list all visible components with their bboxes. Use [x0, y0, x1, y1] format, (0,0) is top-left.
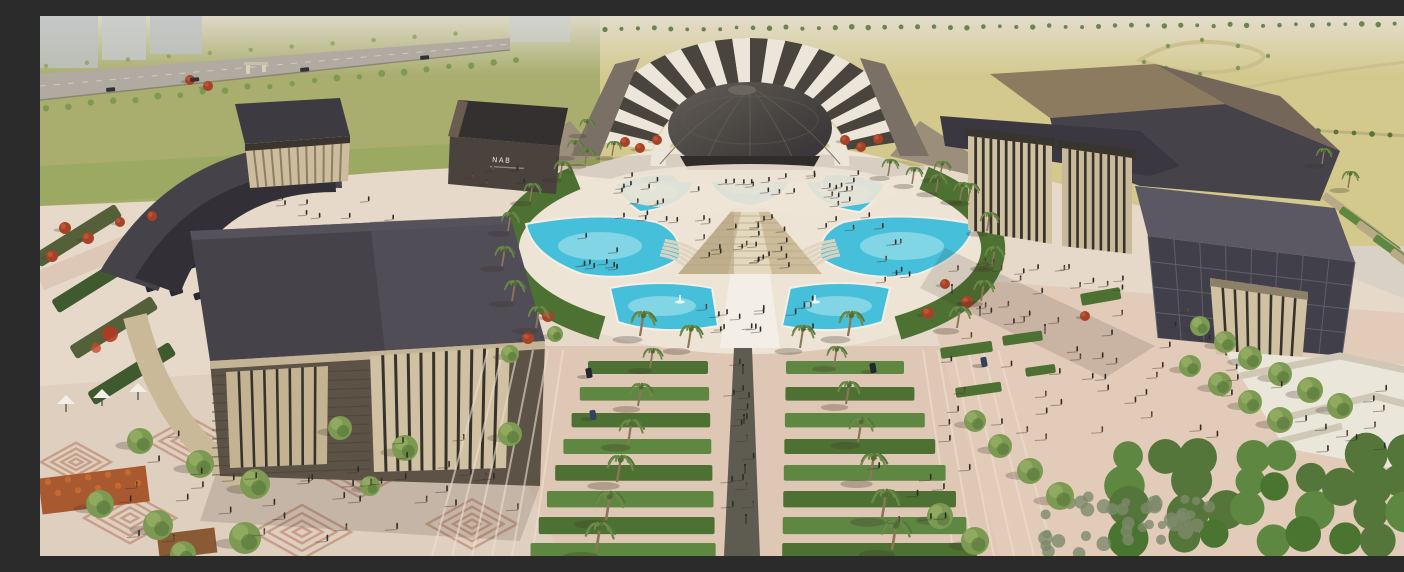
hedge-bed	[555, 465, 712, 481]
pedestrian-shadow	[978, 269, 987, 270]
pedestrian-shadow	[919, 480, 931, 481]
pedestrian-shadow	[359, 486, 371, 487]
pedestrian-shadow	[845, 183, 853, 184]
grove-tree	[1286, 516, 1321, 551]
pedestrian-shadow	[1084, 283, 1094, 284]
grove-tree	[1329, 522, 1361, 554]
pedestrian-shadow	[509, 170, 517, 171]
pedestrian-shadow	[786, 193, 795, 194]
pedestrian-shadow	[947, 412, 958, 413]
pedestrian-shadow	[824, 197, 833, 198]
pedestrian-shadow	[1271, 387, 1282, 388]
rendering-canvas: NAB	[40, 16, 1404, 556]
pedestrian-shadow	[1221, 396, 1232, 397]
palm-shadow	[512, 328, 538, 335]
pedestrian-shadow	[738, 398, 749, 399]
palm-shadow	[1304, 164, 1323, 169]
pedestrian-shadow	[608, 253, 617, 254]
pedestrian-shadow	[119, 502, 131, 503]
pedestrian-shadow	[958, 470, 970, 471]
pedestrian-shadow	[1317, 451, 1328, 452]
palm-shadow	[850, 518, 885, 527]
facade-column	[340, 144, 341, 182]
pedestrian-shadow	[1113, 290, 1123, 291]
north-annex-building	[235, 98, 350, 188]
pedestrian-shadow	[730, 319, 740, 320]
pedestrian-shadow	[874, 228, 883, 229]
pedestrian-shadow	[750, 332, 760, 333]
pedestrian-shadow	[976, 308, 986, 309]
pedestrian-shadow	[191, 488, 203, 489]
pedestrian-shadow	[1001, 367, 1011, 368]
pedestrian-shadow	[301, 480, 313, 481]
pedestrian-shadow	[736, 441, 747, 442]
pedestrian-shadow	[148, 462, 159, 463]
pedestrian-shadow	[655, 204, 664, 205]
pedestrian-shadow	[961, 338, 971, 339]
pedestrian-shadow	[718, 184, 726, 185]
pedestrian-shadow	[932, 490, 944, 491]
pedestrian-shadow	[830, 198, 839, 199]
grove-tree	[1200, 519, 1229, 548]
pedestrian-shadow	[939, 441, 950, 442]
pedestrian-shadow	[992, 271, 1001, 272]
pedestrian-shadow	[1112, 315, 1122, 316]
car	[300, 67, 309, 72]
pedestrian-shadow	[438, 467, 450, 468]
pedestrian-shadow	[754, 314, 764, 315]
pedestrian-shadow	[1092, 358, 1102, 359]
hedge-bed	[539, 517, 715, 534]
pedestrian-shadow	[786, 315, 796, 316]
palm-shadow	[587, 482, 619, 490]
pedestrian-shadow	[906, 496, 918, 497]
palm-shadow	[663, 348, 691, 355]
pedestrian-shadow	[1095, 380, 1106, 381]
orange-flowers	[65, 476, 71, 482]
pedestrian-shadow	[954, 393, 965, 394]
pedestrian-shadow	[1033, 293, 1043, 294]
pedestrian-shadow	[721, 507, 733, 508]
pedestrian-shadow	[755, 221, 764, 222]
palm-shadow	[821, 336, 851, 344]
pedestrian-shadow	[982, 313, 992, 314]
dome-cap	[728, 85, 756, 95]
pedestrian-shadow	[830, 206, 839, 207]
pedestrian-shadow	[392, 443, 403, 444]
orange-flowers	[75, 487, 81, 493]
pedestrian-shadow	[1106, 364, 1116, 365]
palm-shadow	[541, 178, 561, 183]
pedestrian-shadow	[1166, 327, 1176, 328]
pedestrian-shadow	[760, 193, 769, 194]
pedestrian-shadow	[887, 523, 899, 524]
pedestrian-shadow	[613, 193, 622, 194]
facade-column	[306, 146, 307, 184]
pedestrian-shadow	[167, 437, 178, 438]
forecourt	[600, 164, 900, 212]
pedestrian-shadow	[777, 178, 785, 179]
hedge-bed	[783, 491, 956, 507]
pedestrian-shadow	[348, 502, 360, 503]
pedestrian-shadow	[697, 310, 707, 311]
hedge-bed	[785, 387, 914, 401]
aerial-rendering: NAB	[40, 16, 1404, 556]
palm-shadow	[596, 156, 614, 161]
pedestrian-shadow	[190, 474, 202, 475]
pedestrian-shadow	[735, 184, 743, 185]
facade-column	[1270, 287, 1272, 361]
pedestrian-shadow	[806, 178, 814, 179]
pedestrian-shadow	[745, 187, 753, 188]
pedestrian-shadow	[334, 530, 346, 531]
pedestrian-shadow	[991, 424, 1002, 425]
pedestrian-shadow	[125, 488, 137, 489]
building-sign-text: NAB	[492, 156, 512, 165]
pedestrian-shadow	[803, 329, 813, 330]
pedestrian-shadow	[737, 409, 748, 410]
pedestrian-shadow	[1373, 449, 1384, 450]
pedestrian-shadow	[605, 267, 614, 268]
pedestrian-shadow	[1136, 395, 1147, 396]
pedestrian-shadow	[701, 223, 710, 224]
pedestrian-shadow	[877, 261, 886, 262]
pedestrian-shadow	[844, 191, 853, 192]
palm-shadow	[628, 368, 652, 374]
pedestrian-shadow	[444, 506, 456, 507]
orange-flowers	[115, 482, 121, 488]
pedestrian-shadow	[252, 535, 264, 536]
terrace-strip	[1389, 248, 1404, 297]
pedestrian-shadow	[711, 254, 720, 255]
pedestrian-shadow	[222, 481, 234, 482]
palm-shadow	[569, 134, 587, 139]
pedestrian-shadow	[999, 307, 1009, 308]
central-walkway	[720, 274, 780, 348]
pedestrian-shadow	[1227, 380, 1238, 381]
palm-shadow	[1329, 188, 1349, 193]
palm-shadow	[555, 156, 574, 161]
palm-shadow	[510, 201, 532, 206]
pedestrian-shadow	[1070, 360, 1080, 361]
pedestrian-shadow	[1051, 405, 1062, 406]
pedestrian-shadow	[1152, 368, 1162, 369]
palm-shadow	[933, 328, 959, 335]
palm-shadow	[831, 442, 861, 450]
pedestrian-shadow	[585, 268, 594, 269]
pedestrian-shadow	[1295, 421, 1306, 422]
facade-column	[332, 144, 333, 182]
pedestrian-shadow	[1098, 286, 1108, 287]
hedge-bed	[563, 439, 711, 454]
pedestrian-shadow	[949, 271, 958, 272]
pedestrian-shadow	[1014, 322, 1024, 323]
palm-shadow	[869, 176, 889, 181]
orange-flowers	[105, 472, 111, 478]
pedestrian-shadow	[743, 184, 751, 185]
palm-shadow	[893, 184, 913, 189]
pedestrian-shadow	[1376, 391, 1387, 392]
pedestrian-shadow	[1016, 433, 1027, 434]
pedestrian-shadow	[887, 245, 896, 246]
pedestrian-shadow	[933, 519, 945, 520]
pedestrian-shadow	[341, 218, 350, 219]
pedestrian-shadow	[464, 178, 472, 179]
pedestrian-shadow	[577, 238, 586, 239]
pedestrian-shadow	[841, 202, 850, 203]
pedestrian-shadow	[276, 205, 285, 206]
pedestrian-shadow	[1160, 347, 1170, 348]
pedestrian-shadow	[1206, 437, 1217, 438]
pedestrian-shadow	[731, 480, 743, 481]
pedestrian-shadow	[262, 505, 274, 506]
pedestrian-shadow	[735, 489, 747, 490]
pedestrian-shadow	[731, 425, 742, 426]
pedestrian-shadow	[162, 541, 174, 542]
pedestrian-shadow	[649, 205, 658, 206]
pedestrian-shadow	[1082, 379, 1093, 380]
orange-flowers	[135, 480, 141, 486]
lattice-hall	[1135, 186, 1355, 364]
pedestrian-shadow	[315, 542, 327, 543]
pedestrian-shadow	[711, 249, 720, 250]
pedestrian-shadow	[747, 247, 756, 248]
pedestrian-shadow	[127, 537, 139, 538]
pedestrian-shadow	[1035, 397, 1046, 398]
pedestrian-shadow	[714, 330, 724, 331]
pedestrian-shadow	[850, 175, 858, 176]
pedestrian-shadow	[803, 301, 813, 302]
pedestrian-shadow	[1049, 374, 1060, 375]
palm-shadow	[613, 406, 641, 413]
pedestrian-shadow	[245, 479, 257, 480]
pedestrian-shadow	[385, 529, 397, 530]
pedestrian-shadow	[298, 215, 307, 216]
pedestrian-shadow	[778, 243, 787, 244]
pedestrian-shadow	[608, 269, 617, 270]
pedestrian-shadow	[1199, 340, 1209, 341]
pedestrian-shadow	[597, 264, 606, 265]
facade-column	[458, 350, 459, 469]
hedge-bed	[580, 387, 709, 401]
pedestrian-shadow	[624, 177, 632, 178]
pedestrian-shadow	[726, 184, 734, 185]
pedestrian-shadow	[452, 440, 463, 441]
pedestrian-shadow	[1014, 274, 1023, 275]
pedestrian-shadow	[733, 249, 742, 250]
pedestrian-shadow	[394, 479, 406, 480]
pedestrian-shadow	[720, 482, 732, 483]
pedestrian-shadow	[649, 182, 657, 183]
palm-shadow	[489, 301, 514, 307]
palm-shadow	[601, 444, 631, 452]
pedestrian-shadow	[938, 425, 949, 426]
pedestrian-shadow	[806, 176, 814, 177]
orange-flowers	[45, 479, 51, 485]
pedestrian-shadow	[941, 362, 951, 363]
pedestrian-shadow	[821, 188, 829, 189]
pedestrian-shadow	[1226, 370, 1236, 371]
grove-tree	[1230, 491, 1264, 525]
pedestrian-shadow	[761, 182, 769, 183]
car	[420, 55, 429, 60]
palm-shadow	[567, 164, 586, 169]
palm-shadow	[821, 404, 849, 411]
pedestrian-shadow	[741, 507, 753, 508]
pedestrian-shadow	[1020, 316, 1030, 317]
palm-shadow	[916, 192, 938, 197]
pedestrian-shadow	[311, 218, 320, 219]
pedestrian-shadow	[717, 315, 727, 316]
palm-shadow	[480, 266, 504, 272]
hedge-bed	[547, 491, 714, 507]
pedestrian-shadow	[1141, 417, 1152, 418]
pedestrian-shadow	[1113, 281, 1123, 282]
pedestrian-shadow	[1189, 431, 1200, 432]
pedestrian-shadow	[771, 194, 780, 195]
pedestrian-shadow	[780, 268, 789, 269]
pedestrian-shadow	[639, 216, 648, 217]
pedestrian-shadow	[1011, 281, 1021, 282]
pedestrian-shadow	[396, 458, 407, 459]
pedestrian-shadow	[754, 311, 764, 312]
pedestrian-shadow	[749, 263, 758, 264]
pedestrian-shadow	[750, 236, 759, 237]
palm-shadow	[840, 480, 872, 488]
pedestrian-shadow	[723, 395, 734, 396]
pedestrian-shadow	[868, 469, 880, 470]
pedestrian-shadow	[695, 240, 704, 241]
pedestrian-shadow	[1125, 403, 1136, 404]
pedestrian-shadow	[817, 228, 826, 229]
pedestrian-shadow	[641, 189, 649, 190]
pedestrian-shadow	[1004, 324, 1014, 325]
pedestrian-shadow	[729, 365, 739, 366]
palm-shadow	[487, 231, 510, 237]
pedestrian-shadow	[219, 513, 231, 514]
pedestrian-shadow	[700, 257, 709, 258]
pedestrian-shadow	[176, 500, 188, 501]
palm-shadow	[940, 200, 962, 205]
pedestrian-shadow	[459, 475, 471, 476]
pedestrian-shadow	[658, 221, 667, 222]
pedestrian-shadow	[360, 202, 369, 203]
pedestrian-shadow	[274, 200, 283, 201]
pedestrian-shadow	[1060, 269, 1069, 270]
palm-shadow	[613, 336, 643, 344]
pedestrian-shadow	[772, 251, 781, 252]
orange-flowers	[85, 474, 91, 480]
palm-shadow	[966, 231, 989, 237]
pedestrian-shadow	[1315, 430, 1326, 431]
pedestrian-shadow	[887, 276, 896, 277]
pedestrian-shadow	[1048, 323, 1058, 324]
pedestrian-shadow	[695, 220, 704, 221]
pedestrian-shadow	[760, 257, 769, 258]
pedestrian-shadow	[1363, 401, 1374, 402]
pedestrian-shadow	[1364, 428, 1375, 429]
pedestrian-shadow	[801, 308, 811, 309]
pedestrian-shadow	[1178, 312, 1188, 313]
pedestrian-shadow	[1091, 433, 1102, 434]
pedestrian-shadow	[479, 185, 487, 186]
pedestrian-shadow	[485, 171, 493, 172]
pedestrian-shadow	[876, 282, 886, 283]
pedestrian-shadow	[742, 459, 753, 460]
pedestrian-shadow	[711, 332, 721, 333]
pedestrian-shadow	[1036, 414, 1047, 415]
hedge-bed	[786, 361, 904, 374]
palm-shadow	[812, 366, 836, 372]
car	[190, 77, 199, 82]
pedestrian-shadow	[690, 191, 699, 192]
pedestrian-shadow	[727, 229, 736, 230]
main-west-building	[190, 216, 545, 486]
pedestrian-shadow	[1373, 411, 1384, 412]
pedestrian-shadow	[384, 220, 393, 221]
pedestrian-shadow	[827, 221, 836, 222]
pedestrian-shadow	[1067, 352, 1077, 353]
pedestrian-shadow	[1035, 440, 1046, 441]
orange-flowers	[125, 469, 131, 475]
pedestrian-shadow	[297, 483, 309, 484]
pedestrian-shadow	[749, 229, 758, 230]
pedestrian-shadow	[629, 203, 638, 204]
pedestrian-shadow	[474, 480, 486, 481]
pedestrian-shadow	[732, 391, 743, 392]
pedestrian-shadow	[575, 266, 584, 267]
pedestrian-shadow	[506, 510, 518, 511]
pedestrian-shadow	[1097, 391, 1108, 392]
pedestrian-shadow	[1029, 270, 1038, 271]
pedestrian-shadow	[860, 217, 869, 218]
pedestrian-shadow	[622, 186, 630, 187]
grove-tree	[1296, 463, 1326, 493]
pedestrian-shadow	[976, 264, 985, 265]
pedestrian-shadow	[709, 317, 719, 318]
grove-tree	[1260, 472, 1288, 500]
pedestrian-shadow	[1146, 378, 1157, 379]
pedestrian-shadow	[742, 329, 752, 330]
grove-tree	[1265, 440, 1296, 471]
pedestrian-shadow	[341, 486, 353, 487]
pedestrian-shadow	[435, 492, 447, 493]
pedestrian-shadow	[833, 188, 841, 189]
pedestrian-shadow	[845, 230, 854, 231]
pedestrian-shadow	[1102, 335, 1112, 336]
palm-shadow	[775, 348, 803, 355]
pedestrian-shadow	[298, 204, 307, 205]
pedestrian-shadow	[516, 183, 524, 184]
pedestrian-shadow	[984, 265, 993, 266]
orange-flowers	[55, 490, 61, 496]
pedestrian-shadow	[1345, 440, 1356, 441]
pedestrian-shadow	[347, 472, 359, 473]
pedestrian-shadow	[332, 499, 344, 500]
car	[106, 87, 115, 92]
pedestrian-shadow	[919, 520, 931, 521]
hedge-bed	[531, 543, 716, 556]
pedestrian-shadow	[892, 272, 901, 273]
pedestrian-shadow	[415, 502, 427, 503]
pedestrian-shadow	[668, 222, 677, 223]
pedestrian-shadow	[637, 220, 646, 221]
hedge-bed	[784, 465, 946, 481]
facade-column	[277, 369, 279, 466]
pedestrian-shadow	[749, 227, 758, 228]
red-flower-bed	[102, 326, 118, 342]
facade-column	[421, 353, 422, 471]
